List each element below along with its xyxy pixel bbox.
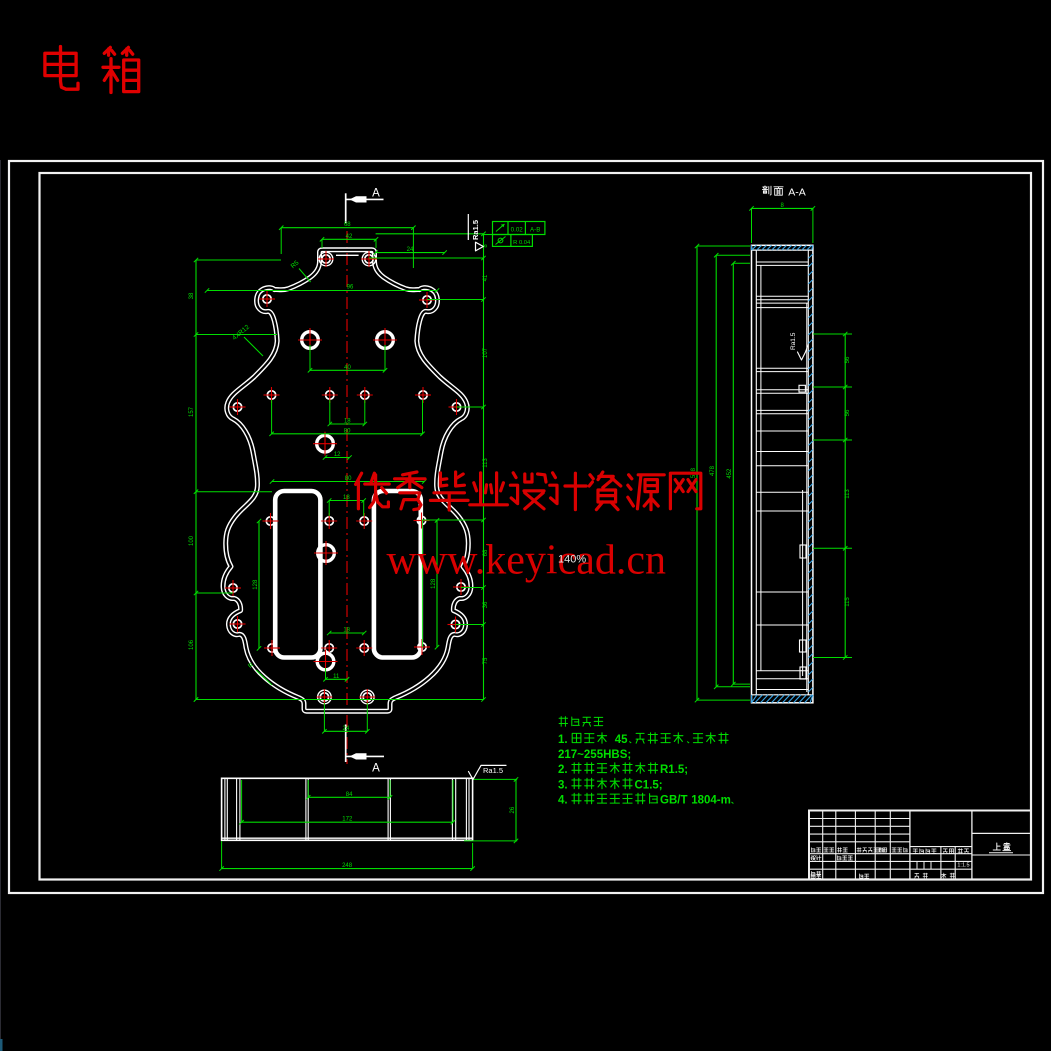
svg-text:80: 80 bbox=[345, 476, 352, 482]
svg-text:172: 172 bbox=[342, 817, 353, 823]
svg-text:140%: 140% bbox=[558, 554, 586, 566]
svg-text:452: 452 bbox=[727, 468, 733, 479]
svg-text:42: 42 bbox=[346, 234, 353, 240]
svg-text:A: A bbox=[372, 188, 380, 200]
svg-text:56: 56 bbox=[845, 409, 851, 416]
svg-text:www.keyicad.cn: www.keyicad.cn bbox=[387, 538, 667, 584]
svg-text:24: 24 bbox=[407, 247, 414, 253]
svg-text:GB/T: GB/T bbox=[660, 795, 687, 807]
svg-text:45: 45 bbox=[615, 734, 628, 746]
svg-text:A: A bbox=[372, 763, 380, 775]
svg-text:113: 113 bbox=[845, 489, 851, 499]
svg-text:36: 36 bbox=[483, 601, 489, 608]
svg-text:R1.5;: R1.5; bbox=[660, 764, 688, 776]
svg-text:56: 56 bbox=[845, 356, 851, 363]
svg-text:0.02: 0.02 bbox=[511, 227, 524, 234]
svg-text:Ra1.5: Ra1.5 bbox=[790, 332, 797, 350]
svg-text:38: 38 bbox=[189, 292, 195, 299]
svg-text:75: 75 bbox=[483, 657, 489, 664]
svg-text:84: 84 bbox=[346, 792, 353, 798]
svg-text:A-B: A-B bbox=[530, 227, 540, 234]
svg-text:4.: 4. bbox=[558, 795, 568, 807]
svg-text:24: 24 bbox=[343, 726, 350, 732]
svg-text:40: 40 bbox=[344, 365, 351, 371]
svg-text:1.: 1. bbox=[558, 734, 568, 746]
svg-text:248: 248 bbox=[342, 863, 353, 869]
svg-text:1:1.5: 1:1.5 bbox=[957, 863, 969, 869]
svg-text:157: 157 bbox=[189, 406, 195, 417]
svg-text:100: 100 bbox=[189, 535, 195, 546]
svg-text:128: 128 bbox=[253, 579, 259, 590]
svg-text:12: 12 bbox=[334, 452, 341, 458]
svg-text:217~255HBS;: 217~255HBS; bbox=[558, 749, 631, 761]
svg-text:Ra1.5: Ra1.5 bbox=[471, 220, 480, 240]
svg-text:2.: 2. bbox=[558, 764, 568, 776]
svg-text:18: 18 bbox=[344, 419, 351, 425]
svg-text:1804-m: 1804-m bbox=[691, 795, 731, 807]
svg-text:96: 96 bbox=[347, 285, 354, 291]
svg-text:80: 80 bbox=[344, 428, 351, 434]
svg-text:Ra1.5: Ra1.5 bbox=[483, 766, 503, 775]
svg-text:18: 18 bbox=[343, 495, 350, 501]
svg-text:R 0.04: R 0.04 bbox=[513, 240, 531, 246]
svg-text:41: 41 bbox=[483, 274, 489, 281]
svg-text:A-A: A-A bbox=[788, 186, 806, 198]
svg-text:C1.5;: C1.5; bbox=[635, 780, 663, 792]
svg-text:11: 11 bbox=[333, 674, 340, 680]
svg-text:115: 115 bbox=[845, 597, 851, 607]
svg-text:68: 68 bbox=[344, 222, 351, 228]
svg-text:18: 18 bbox=[343, 628, 350, 634]
svg-text:106: 106 bbox=[189, 639, 195, 650]
svg-text:478: 478 bbox=[710, 465, 716, 476]
svg-text:26: 26 bbox=[510, 806, 516, 813]
svg-text:107: 107 bbox=[483, 347, 489, 358]
svg-text:113: 113 bbox=[483, 458, 489, 468]
svg-text:3.: 3. bbox=[558, 780, 568, 792]
